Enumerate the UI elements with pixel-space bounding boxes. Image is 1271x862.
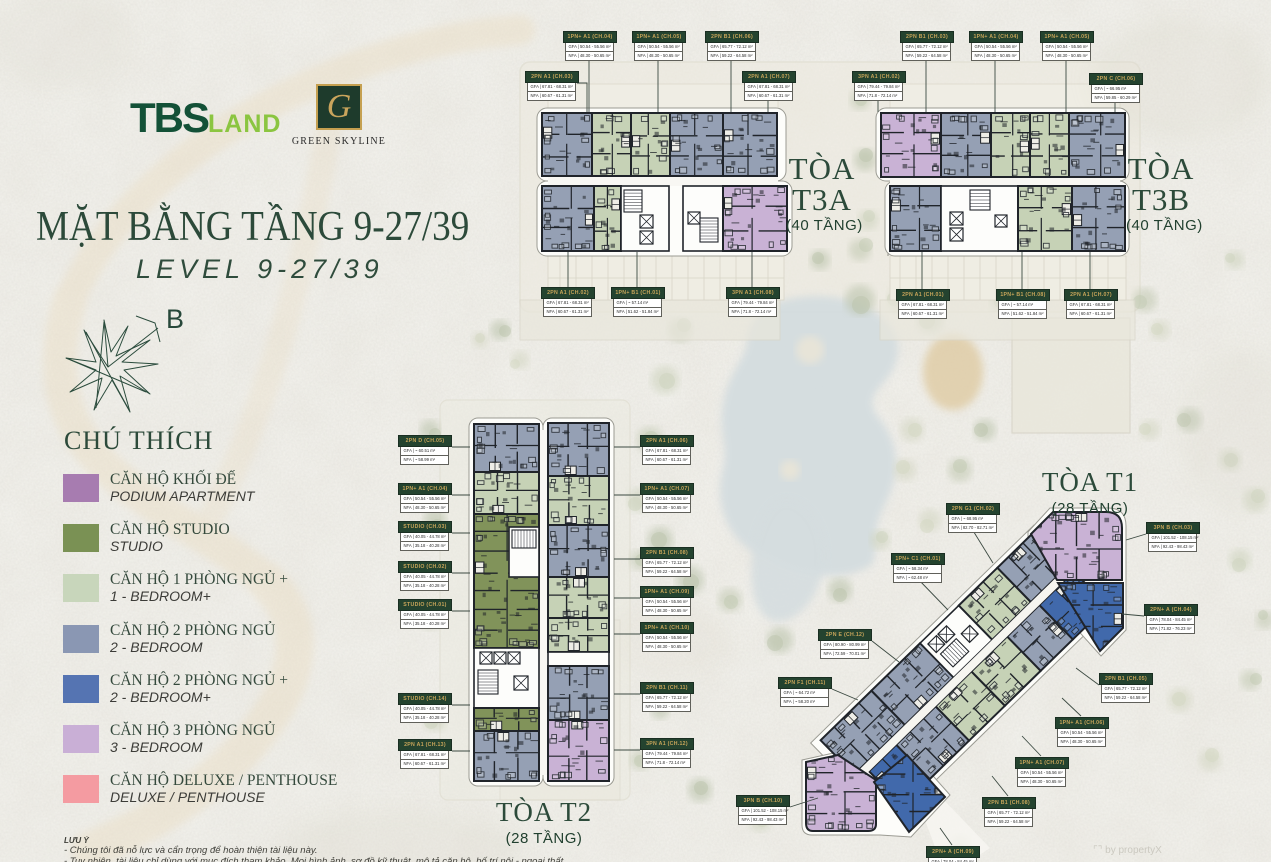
svg-text:B: B	[166, 304, 184, 334]
